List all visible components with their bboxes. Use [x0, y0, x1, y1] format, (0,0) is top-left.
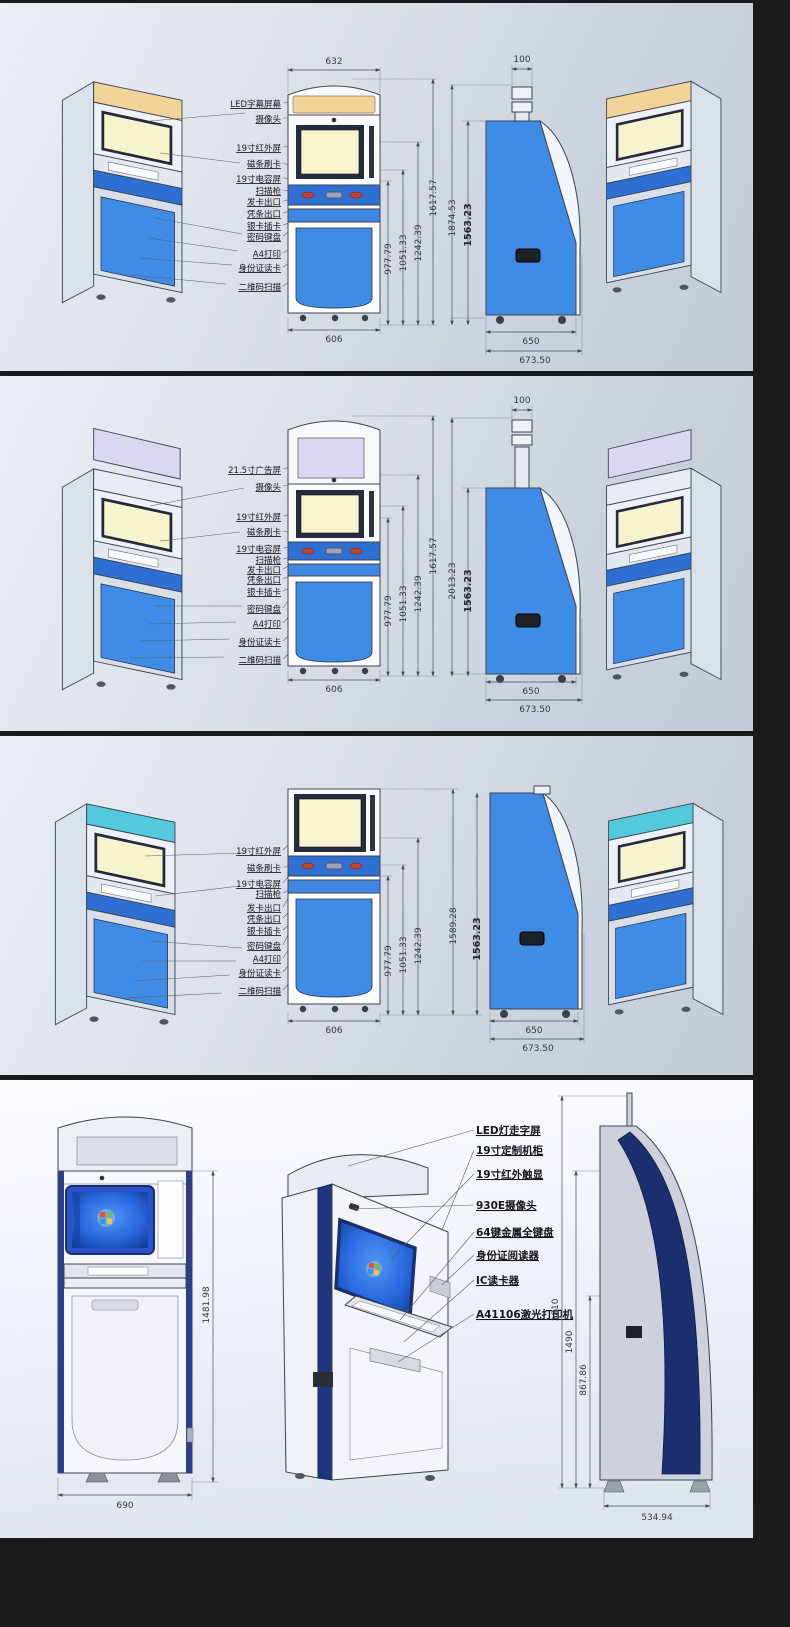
part-label: 发卡出口: [247, 197, 281, 208]
part-label: 扫描枪: [255, 889, 281, 900]
part-label: 磁条刷卡: [247, 159, 282, 170]
dimension-label: 1617.57: [429, 179, 439, 216]
panel1-drawing: LED字幕屏幕 摄像头 19寸红外屏 磁条刷卡 19寸电容屏 扫描枪 发卡出口 …: [0, 3, 753, 371]
part-label: 19寸红外屏: [236, 143, 281, 154]
dimension-label: 673.50: [519, 356, 551, 366]
part-label: 发卡出口: [247, 565, 281, 576]
panel4-drawing: 1481.98 690 LED灯走字屏 19寸定制机柜 19寸红外触显 930E…: [0, 1080, 753, 1538]
camera-dot: [332, 118, 337, 123]
panel2-drawing: 21.5寸广告屏 摄像头 19寸红外屏 磁条刷卡 19寸电容屏 扫描枪 发卡出口…: [0, 376, 753, 731]
part-label: 二维码扫描: [238, 282, 281, 293]
part-label: 21.5寸广告屏: [228, 465, 281, 476]
dimension-label: 977.79: [384, 945, 394, 977]
camera-dot: [100, 1176, 105, 1181]
panel-1: LED字幕屏幕 摄像头 19寸红外屏 磁条刷卡 19寸电容屏 扫描枪 发卡出口 …: [0, 3, 753, 371]
handle: [516, 614, 540, 627]
part-label: 二维码扫描: [238, 986, 281, 997]
part-label: 扫描枪: [255, 555, 281, 566]
printer-slot: [92, 1300, 138, 1310]
dimension-label: 2013.23: [448, 562, 458, 599]
panel-2: 21.5寸广告屏 摄像头 19寸红外屏 磁条刷卡 19寸电容屏 扫描枪 发卡出口…: [0, 376, 753, 731]
panel3-front-view: [288, 789, 380, 1012]
panel2-right-isometric-view: [607, 430, 721, 680]
part-label: 19寸电容屏: [236, 174, 281, 185]
part-label: 19寸红外屏: [236, 846, 281, 857]
panel1-left-isometric-view: [62, 82, 182, 303]
part-label: A4打印: [253, 954, 281, 965]
part-label: 凭条出口: [247, 209, 281, 220]
part-label: 身份证读卡: [238, 263, 281, 274]
drawing-sheet: LED字幕屏幕 摄像头 19寸红外屏 磁条刷卡 19寸电容屏 扫描枪 发卡出口 …: [0, 0, 790, 1627]
panel2-side-view: [486, 420, 580, 683]
part-label: 发卡出口: [247, 903, 281, 914]
dimension-label: 977.79: [384, 243, 394, 275]
handle: [520, 932, 544, 945]
iso-side-slot: [313, 1372, 333, 1387]
part-label: 19寸红外屏: [236, 512, 281, 523]
panel4-part-labels: LED灯走字屏 19寸定制机柜 19寸红外触显 930E摄像头 64键金属全键盘…: [476, 1124, 574, 1321]
panel1-part-labels: LED字幕屏幕 摄像头 19寸红外屏 磁条刷卡 19寸电容屏 扫描枪 发卡出口 …: [230, 99, 281, 293]
panel3-part-labels: 19寸红外屏 磁条刷卡 19寸电容屏 扫描枪 发卡出口 凭条出口 银卡插卡 密码…: [236, 846, 281, 997]
dimension-label: 650: [522, 687, 539, 697]
dimension-label: 650: [525, 1026, 542, 1036]
part-label: 密码键盘: [247, 232, 282, 243]
dimension-label: 690: [116, 1501, 133, 1511]
dimension-label: 1563.23: [463, 569, 474, 612]
part-label: 磁条刷卡: [247, 863, 282, 874]
dimension-label: 606: [325, 335, 342, 345]
dimension-label: 100: [513, 55, 530, 65]
panel2-front-view: [288, 421, 380, 674]
side-panel: [158, 1181, 183, 1258]
dimension-label: 1051.33: [399, 234, 409, 271]
dimension-label: 673.50: [519, 705, 551, 715]
dimension-label: 606: [325, 685, 342, 695]
part-label: 930E摄像头: [476, 1199, 537, 1212]
part-label: LED灯走字屏: [476, 1124, 541, 1137]
part-label: IC读卡器: [476, 1274, 520, 1287]
part-label: 磁条刷卡: [247, 527, 282, 538]
dimension-label: 1051.33: [399, 585, 409, 622]
dimension-label: 1481.98: [202, 1286, 212, 1323]
dimension-label: 1242.39: [414, 224, 424, 261]
dimension-label: 977.79: [384, 595, 394, 627]
screen: [301, 495, 359, 533]
part-label: 银卡插卡: [247, 587, 282, 598]
panel1-side-view: [486, 87, 580, 324]
part-label: 身份证读卡: [238, 968, 281, 979]
screen: [299, 799, 361, 847]
part-label: 密码键盘: [247, 941, 282, 952]
dimension-label: 1617.57: [429, 537, 439, 574]
part-label: 19寸定制机柜: [476, 1144, 544, 1157]
dimension-label: 1051.33: [399, 936, 409, 973]
part-label: LED字幕屏幕: [230, 99, 281, 110]
part-label: 摄像头: [255, 114, 281, 125]
dimension-label: 534.94: [641, 1513, 673, 1523]
dimension-label: 867.86: [579, 1364, 589, 1396]
side-slot: [626, 1326, 642, 1338]
part-label: 凭条出口: [247, 914, 281, 925]
panel4-side-view: [600, 1093, 712, 1492]
dimension-label: 1589.28: [449, 907, 459, 944]
part-label: 银卡插卡: [247, 926, 282, 937]
panel3-side-view: [490, 786, 582, 1018]
panel1-right-isometric-view: [607, 81, 721, 292]
led-band: [293, 96, 375, 113]
part-label: 扫描枪: [255, 186, 281, 197]
part-label: 二维码扫描: [238, 655, 281, 666]
dimension-label: 1563.23: [463, 203, 474, 246]
part-label: 摄像头: [255, 482, 281, 493]
ad-screen: [298, 438, 364, 478]
panel3-right-isometric-view: [609, 803, 723, 1014]
dimension-label: 1242.39: [414, 575, 424, 612]
part-label: 银卡插卡: [247, 221, 282, 232]
part-label: A4打印: [253, 619, 281, 630]
handle: [516, 249, 540, 262]
panel2-left-isometric-view: [62, 428, 182, 689]
screen: [301, 130, 359, 174]
part-label: 凭条出口: [247, 575, 281, 586]
keyboard: [88, 1267, 148, 1275]
part-label: 64键金属全键盘: [476, 1226, 554, 1239]
camera-dot: [332, 478, 337, 483]
panel2-part-labels: 21.5寸广告屏 摄像头 19寸红外屏 磁条刷卡 19寸电容屏 扫描枪 发卡出口…: [228, 465, 281, 666]
panel-4: 1481.98 690 LED灯走字屏 19寸定制机柜 19寸红外触显 930E…: [0, 1080, 753, 1538]
part-label: 19寸电容屏: [236, 544, 281, 555]
led-panel: [77, 1137, 177, 1165]
dimension-label: 1490: [565, 1330, 575, 1353]
dimension-label: 1810: [551, 1298, 561, 1321]
lower-door: [72, 1296, 178, 1460]
panel3-drawing: 19寸红外屏 磁条刷卡 19寸电容屏 扫描枪 发卡出口 凭条出口 银卡插卡 密码…: [0, 736, 753, 1075]
panel4-isometric-view: [282, 1155, 452, 1481]
panel1-front-view: [288, 86, 380, 321]
part-label: A4打印: [253, 249, 281, 260]
part-label: 身份证读卡: [238, 637, 281, 648]
dimension-label: 673.50: [522, 1044, 554, 1054]
panel-3: 19寸红外屏 磁条刷卡 19寸电容屏 扫描枪 发卡出口 凭条出口 银卡插卡 密码…: [0, 736, 753, 1075]
dimension-label: 100: [513, 396, 530, 406]
part-label: 19寸红外触显: [476, 1168, 544, 1181]
dimension-label: 1242.39: [414, 927, 424, 964]
part-label: 身份证阅读器: [476, 1249, 539, 1262]
dimension-label: 1874.53: [448, 199, 458, 236]
dimension-label: 650: [522, 337, 539, 347]
panel4-front-view: [58, 1117, 193, 1482]
dimension-label: 1563.23: [472, 917, 483, 960]
dimension-label: 606: [325, 1026, 342, 1036]
dimension-label: 632: [325, 57, 342, 67]
part-label: 密码键盘: [247, 604, 282, 615]
part-label: 19寸电容屏: [236, 879, 281, 890]
windows-logo: [97, 1209, 115, 1227]
panel3-left-isometric-view: [55, 804, 175, 1025]
